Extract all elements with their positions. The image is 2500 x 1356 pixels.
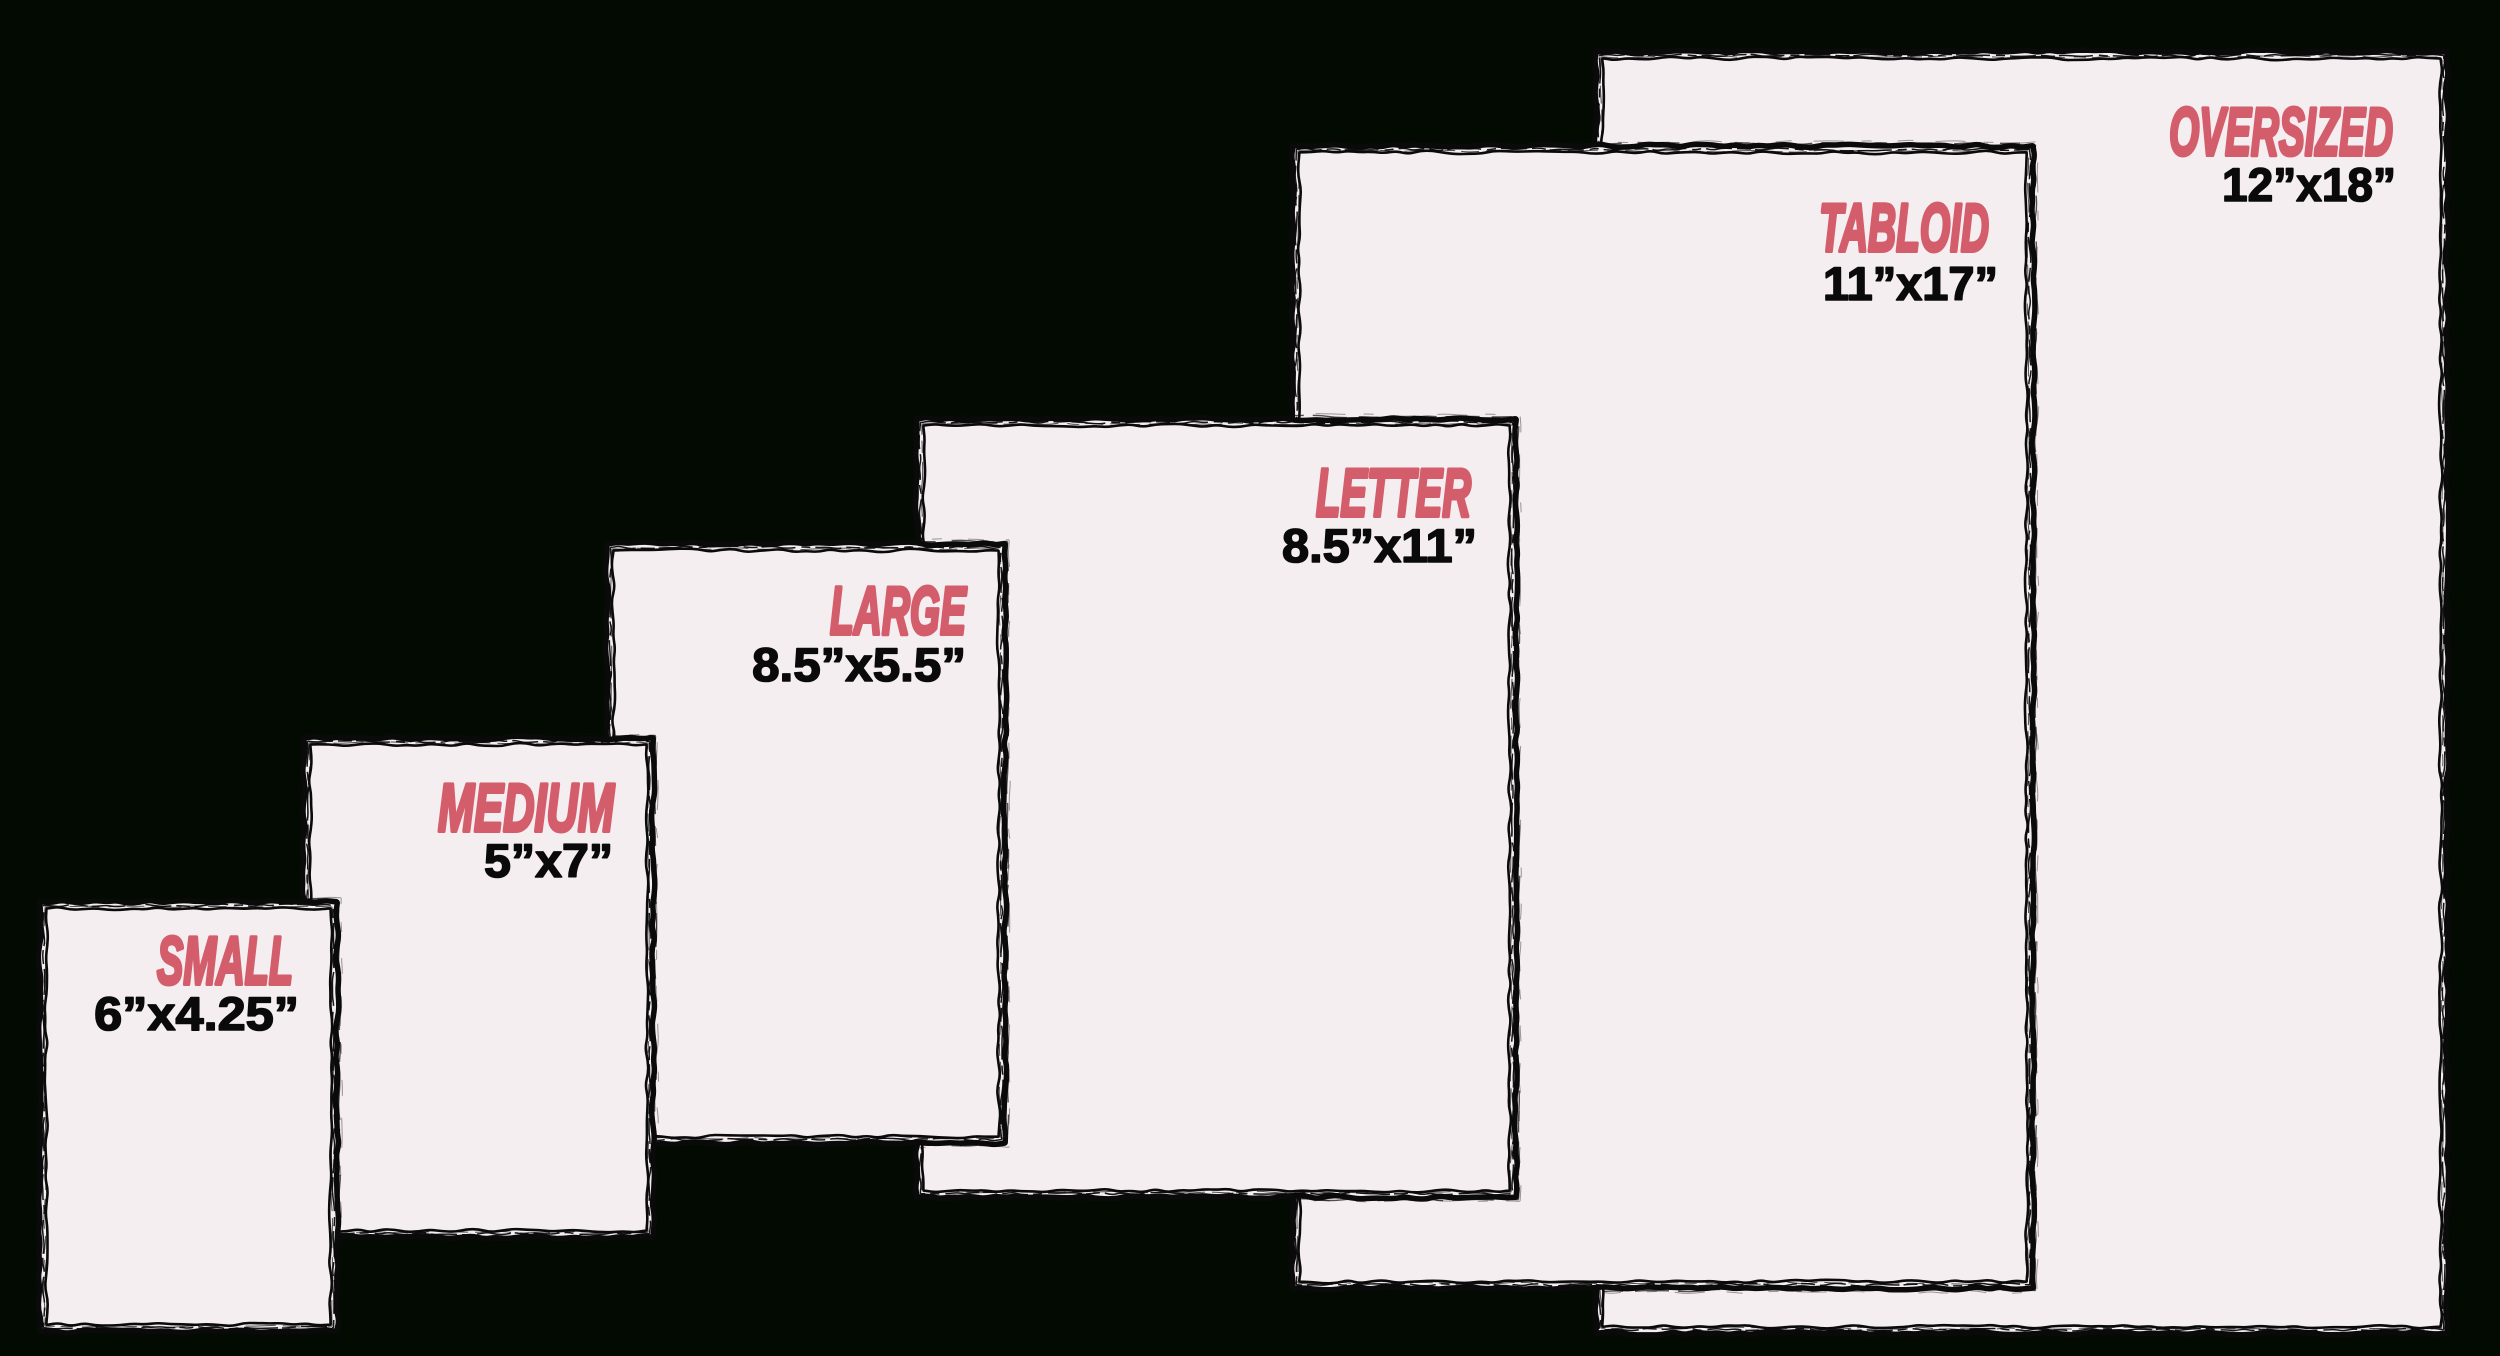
svg-text:6”x4.25”: 6”x4.25” — [94, 989, 299, 1041]
svg-text:8.5”x5.5”: 8.5”x5.5” — [752, 639, 966, 692]
svg-text:11”x17”: 11”x17” — [1823, 257, 1998, 310]
svg-text:12”x18”: 12”x18” — [2222, 159, 2396, 212]
svg-text:LARGE: LARGE — [830, 573, 967, 649]
svg-text:5”x7”: 5”x7” — [484, 836, 613, 888]
svg-text:8.5”x11”: 8.5”x11” — [1282, 521, 1477, 573]
svg-text:LETTER: LETTER — [1316, 455, 1471, 531]
svg-text:TABLOID: TABLOID — [1819, 190, 1989, 266]
svg-text:SMALL: SMALL — [157, 923, 293, 999]
